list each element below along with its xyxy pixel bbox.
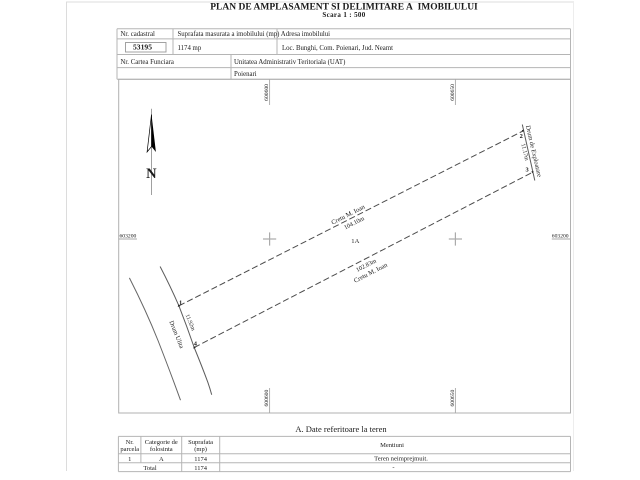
svg-text:603200: 603200 <box>120 234 137 240</box>
svg-text:-: - <box>392 465 394 472</box>
svg-text:A. Date referitoare la teren: A. Date referitoare la teren <box>295 424 387 434</box>
svg-text:1174: 1174 <box>194 465 208 472</box>
svg-text:2: 2 <box>520 133 523 140</box>
svg-text:600600: 600600 <box>264 390 270 407</box>
svg-text:Loc. Bunghi, Com. Poienari, Ju: Loc. Bunghi, Com. Poienari, Jud. Neamt <box>282 45 393 52</box>
svg-text:(mp): (mp) <box>194 446 207 453</box>
svg-text:603200: 603200 <box>552 234 569 240</box>
svg-text:Total: Total <box>143 465 156 472</box>
svg-text:1A: 1A <box>351 238 359 245</box>
svg-text:N: N <box>146 166 157 182</box>
svg-text:Nr. cadastral: Nr. cadastral <box>121 31 155 38</box>
svg-text:53195: 53195 <box>133 43 152 52</box>
svg-text:folosinta: folosinta <box>150 446 173 453</box>
svg-text:600650: 600650 <box>450 390 456 407</box>
svg-text:1: 1 <box>179 299 182 306</box>
svg-text:600600: 600600 <box>264 84 270 101</box>
svg-text:A: A <box>159 456 164 463</box>
svg-text:parcela: parcela <box>120 446 139 453</box>
svg-text:Mentiuni: Mentiuni <box>380 442 404 449</box>
svg-text:600650: 600650 <box>450 84 456 101</box>
svg-text:3: 3 <box>525 166 528 173</box>
svg-text:Scara 1 : 500: Scara 1 : 500 <box>322 11 365 19</box>
svg-text:1: 1 <box>128 456 131 463</box>
svg-text:Nr. Cartea Funciara: Nr. Cartea Funciara <box>121 59 174 66</box>
svg-text:Teren neimprejmuit.: Teren neimprejmuit. <box>374 455 428 462</box>
svg-text:1174: 1174 <box>194 456 208 463</box>
svg-text:Poienari: Poienari <box>234 71 257 78</box>
svg-text:Adresa imobilului: Adresa imobilului <box>281 31 330 38</box>
svg-text:Suprafata masurata a imobilulu: Suprafata masurata a imobilului (mp) <box>178 31 280 38</box>
svg-text:Unitatea Administrativ Teritor: Unitatea Administrativ Teritoriala (UAT) <box>234 59 345 66</box>
svg-text:1174 mp: 1174 mp <box>178 45 202 52</box>
